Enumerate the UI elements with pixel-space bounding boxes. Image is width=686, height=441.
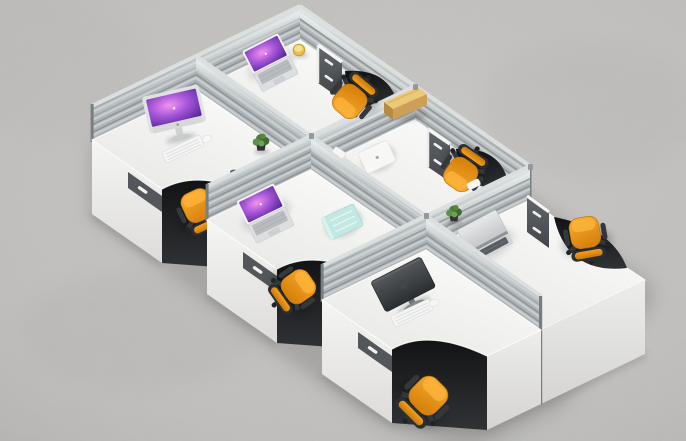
partition-post — [206, 184, 209, 222]
partition-post — [91, 104, 94, 142]
partition-post — [321, 264, 324, 302]
scene-illustration — [0, 0, 686, 441]
photo-canvas: Bird's-eye studio photograph of a six-pe… — [0, 0, 686, 441]
